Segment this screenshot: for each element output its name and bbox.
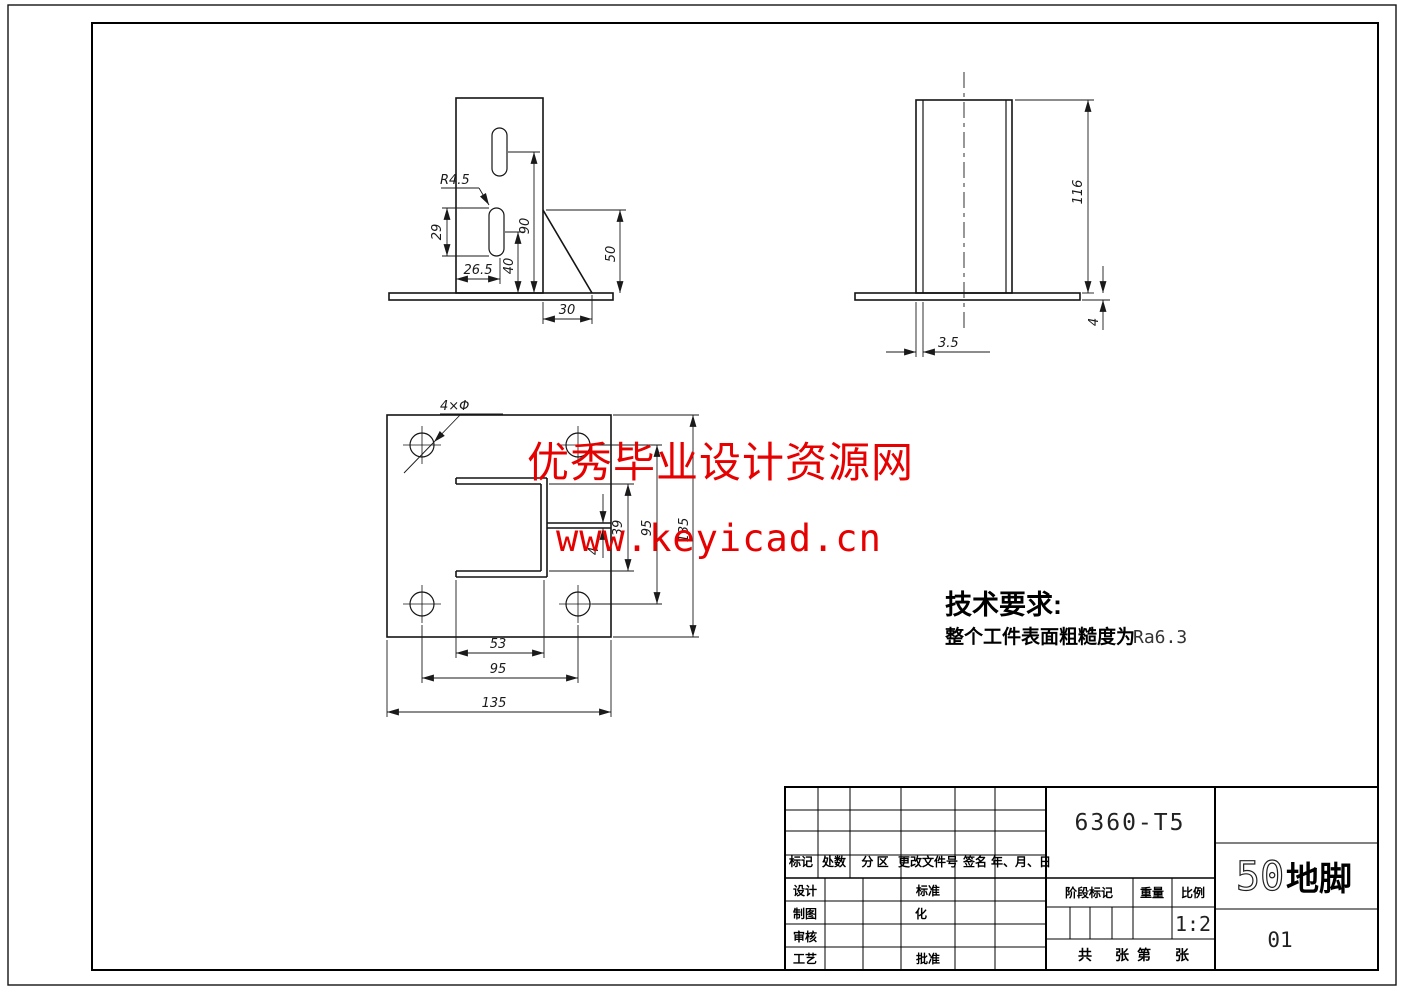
watermark-line2: www.keyicad.cn	[556, 517, 882, 560]
dim-front-lower-height: 40	[502, 258, 517, 275]
dim-side-wall-thickness: 3.5	[938, 336, 959, 351]
dim-front-slot-length: 29	[430, 224, 445, 241]
bolt-hole	[403, 426, 441, 464]
tb-sheet-number: 01	[1267, 928, 1292, 952]
dim-top-hole-callout: 4×Φ	[440, 399, 469, 414]
tech-req-value: Ra6.3	[1133, 627, 1187, 648]
tb-role-draw: 制图	[793, 906, 817, 921]
dim-front-upper-height: 90	[518, 218, 533, 235]
tb-role-design: 设计	[793, 883, 817, 898]
tech-requirements: 技术要求: 整个工件表面粗糙度为 Ra6.3	[945, 590, 1187, 648]
dim-top-hole-spacing-x: 95	[490, 662, 507, 677]
tb-header-file-no: 更改文件号	[898, 854, 958, 869]
tb-role-process: 工艺	[793, 951, 817, 966]
front-view-dimensions: 29 R4.5 26.5 40 90 50 30	[430, 152, 626, 324]
dim-front-slot-offset: 26.5	[464, 263, 493, 278]
tb-label-standard2: 化	[915, 906, 927, 921]
tb-header-chushu: 处数	[821, 854, 847, 869]
tb-header-stage: 阶段标记	[1065, 885, 1113, 900]
dim-front-gusset-height: 50	[604, 246, 619, 263]
bolt-hole	[559, 585, 597, 623]
tb-header-fenqu: 分 区	[861, 854, 888, 869]
tb-sheets-word: 张	[1115, 947, 1130, 963]
front-view-outlines	[389, 98, 613, 300]
drawing-sheet: 29 R4.5 26.5 40 90 50 30	[0, 0, 1403, 992]
tb-header-scale: 比例	[1181, 885, 1205, 900]
dim-side-height: 116	[1071, 180, 1086, 205]
tb-drawing-number: 6360-T5	[1075, 810, 1186, 836]
tech-req-text: 整个工件表面粗糙度为	[945, 625, 1135, 648]
tb-sheets-word: 张	[1175, 947, 1190, 963]
side-view-outlines	[855, 72, 1080, 331]
watermark: 优秀毕业设计资源网 www.keyicad.cn	[527, 438, 914, 560]
tb-header-qianming: 签名	[962, 854, 987, 869]
tb-role-check: 审核	[793, 929, 817, 944]
tb-header-biaoji: 标记	[788, 854, 813, 869]
title-block-text: 标记 处数 分 区 更改文件号 签名 年、月、日 设计 制图 审核 工艺 标准 …	[788, 810, 1352, 966]
tb-part-name: 地脚	[1286, 860, 1352, 897]
tb-label-approve: 批准	[916, 951, 940, 966]
tb-part-name-prefix: 50	[1236, 854, 1284, 900]
sheet-borders	[8, 5, 1396, 985]
tb-header-date: 年、月、日	[991, 854, 1051, 869]
side-view-dimensions: 116 4 3.5	[886, 100, 1110, 357]
tb-sheets-word: 第	[1137, 947, 1151, 963]
dim-top-plate-width: 135	[482, 696, 507, 711]
tech-req-title: 技术要求:	[945, 590, 1062, 620]
dim-front-gusset-width: 30	[559, 303, 576, 318]
tb-header-weight: 重量	[1140, 885, 1164, 900]
dim-top-channel-depth: 53	[490, 637, 507, 652]
drawing-canvas: 29 R4.5 26.5 40 90 50 30	[0, 0, 1403, 992]
tb-label-standard1: 标准	[915, 883, 940, 898]
bolt-hole	[403, 585, 441, 623]
watermark-line1: 优秀毕业设计资源网	[527, 438, 914, 487]
tb-sheets-word: 共	[1078, 947, 1092, 963]
dim-side-base-thickness: 4	[1087, 318, 1102, 326]
dim-front-slot-radius: R4.5	[440, 173, 470, 188]
tb-scale-value: 1:2	[1175, 912, 1211, 936]
